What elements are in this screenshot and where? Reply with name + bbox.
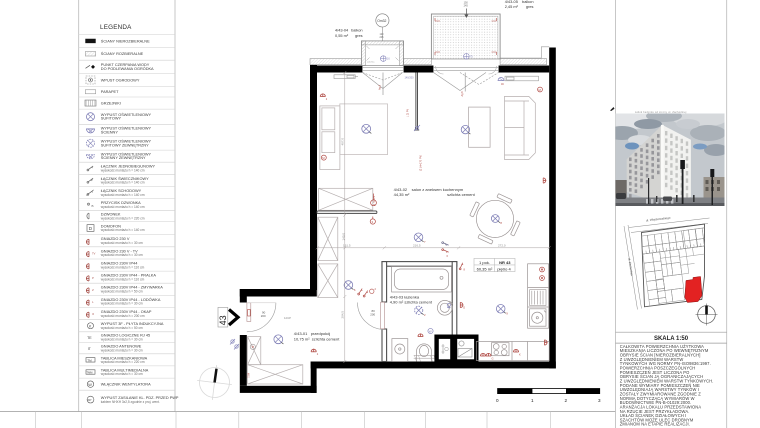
svg-text:4/43-01 przedpokój: 4/43-01 przedpokój	[294, 331, 331, 336]
svg-text:140/200: 140/200	[405, 77, 415, 80]
svg-text:wysokość montażu h = 50 cm: wysokość montażu h = 50 cm	[101, 326, 143, 330]
svg-text:wysokość montażu h = 200 cm: wysokość montażu h = 200 cm	[101, 314, 145, 318]
svg-text:0,55 m²: 0,55 m²	[335, 33, 349, 38]
svg-text:KP: KP	[88, 398, 92, 402]
svg-text:SUFITOWY ZEWNĘTRZNY: SUFITOWY ZEWNĘTRZNY	[101, 143, 149, 147]
svg-text:200: 200	[370, 312, 375, 316]
svg-text:SKALA 1:50: SKALA 1:50	[654, 336, 689, 342]
svg-text:W: W	[88, 383, 92, 387]
svg-text:wysokość montażu h = 140 cm: wysokość montażu h = 140 cm	[101, 168, 145, 172]
svg-text:TV: TV	[92, 252, 96, 256]
svg-text:LEGENDA: LEGENDA	[100, 24, 132, 31]
svg-text:wysokość montażu h = 30 cm: wysokość montażu h = 30 cm	[101, 372, 143, 376]
svg-text:szlichta cement: szlichta cement	[436, 192, 476, 197]
svg-text:wysokość montażu h = 110 cm: wysokość montażu h = 110 cm	[101, 277, 145, 281]
svg-text:245: 245	[380, 36, 385, 39]
svg-text:kablem NHXH 3x2,5 zgodnie z pr: kablem NHXH 3x2,5 zgodnie z proj. went.	[101, 400, 160, 404]
svg-text:wysokość montażu h = 140 cm: wysokość montażu h = 140 cm	[101, 205, 145, 209]
svg-text:wysokość montażu h = 30 cm: wysokość montażu h = 30 cm	[101, 337, 143, 341]
svg-text:O: O	[92, 312, 94, 316]
svg-text:wysokość montażu h = 110 cm: wysokość montażu h = 110 cm	[101, 265, 145, 269]
svg-text:TMM: TMM	[87, 370, 93, 374]
svg-text:gres: gres	[355, 33, 363, 38]
svg-text:wysokość montażu h = 30 cm: wysokość montażu h = 30 cm	[101, 241, 143, 245]
svg-text:gres: gres	[526, 4, 534, 9]
svg-text:10,75 m² szlichta cement: 10,75 m² szlichta cement	[294, 337, 340, 342]
svg-text:B: B	[92, 204, 94, 208]
svg-text:0: 0	[496, 398, 499, 403]
svg-text:wysokość montażu h = 220 cm: wysokość montażu h = 220 cm	[101, 216, 145, 220]
svg-text:wysokość montażu h = 140 cm: wysokość montażu h = 140 cm	[101, 181, 145, 185]
svg-text:PARAPET: PARAPET	[101, 90, 119, 94]
svg-text:140,0: 140,0	[341, 233, 345, 241]
svg-text:60,35 m²: 60,35 m²	[477, 266, 493, 271]
svg-text:191,5: 191,5	[343, 243, 351, 247]
svg-text:(2 (H=170 PV): (2 (H=170 PV)	[420, 155, 423, 171]
svg-text:D: D	[463, 305, 465, 309]
svg-text:ZMIANOM NA ETAPIE REALIZACJI.: ZMIANOM NA ETAPIE REALIZACJI.	[620, 422, 690, 427]
svg-text:216,5: 216,5	[413, 243, 421, 247]
svg-text:wysokość montażu h = 30 cm: wysokość montażu h = 30 cm	[101, 253, 143, 257]
svg-text:1 pok.: 1 pok.	[479, 260, 490, 265]
svg-text:ŚCIENNY ZEWNĘTRZNY: ŚCIENNY ZEWNĘTRZNY	[101, 155, 146, 160]
svg-text:44,35 m²: 44,35 m²	[394, 192, 410, 197]
svg-text:43: 43	[218, 315, 228, 325]
svg-text:ŚCIANY ROZBIERALNE: ŚCIANY ROZBIERALNE	[101, 51, 144, 56]
svg-text:245: 245	[464, 5, 469, 8]
svg-text:ŚCIENNY: ŚCIENNY	[101, 129, 119, 134]
svg-text:4,90 m² szlichta cement: 4,90 m² szlichta cement	[390, 299, 433, 304]
svg-text:2: 2	[565, 398, 568, 403]
svg-text:TM: TM	[87, 358, 92, 362]
svg-text:wysokość montażu h = 50 cm: wysokość montażu h = 50 cm	[101, 290, 143, 294]
svg-text:12UP: 12UP	[284, 316, 291, 320]
svg-text:Om32: Om32	[377, 19, 386, 23]
svg-text:272,0: 272,0	[498, 243, 506, 247]
svg-text:wysokość montażu h = 30 cm: wysokość montażu h = 30 cm	[101, 348, 143, 352]
svg-text:WPUST OGRODOWY: WPUST OGRODOWY	[101, 78, 140, 82]
svg-text:L 2| PV: L 2| PV	[407, 109, 410, 117]
svg-text:407,0: 407,0	[341, 138, 345, 146]
svg-text:3: 3	[598, 398, 601, 403]
svg-text:Ag 6: Ag 6	[461, 91, 464, 97]
svg-text:szlichta: szlichta	[367, 61, 375, 64]
svg-text:Ag 6: Ag 6	[379, 84, 382, 90]
svg-text:GRZEJNIKI: GRZEJNIKI	[101, 101, 121, 105]
svg-text:2,45 m²: 2,45 m²	[505, 4, 519, 9]
svg-text:200: 200	[261, 314, 266, 318]
svg-text:piętro 4: piętro 4	[497, 266, 511, 271]
svg-text:wysokość montażu h = 140 cm: wysokość montażu h = 140 cm	[101, 193, 145, 197]
svg-text:wysokość montażu h = 30 cm: wysokość montażu h = 30 cm	[101, 302, 143, 306]
svg-text:G: G	[492, 356, 494, 360]
svg-text:ŚCIANY NIEROZBIERALNE: ŚCIANY NIEROZBIERALNE	[101, 38, 150, 43]
svg-text:SUFITOWY: SUFITOWY	[101, 117, 122, 121]
svg-text:W: W	[429, 329, 432, 333]
svg-text:wysokość montażu h = 140 cm: wysokość montażu h = 140 cm	[101, 228, 145, 232]
svg-text:294,5: 294,5	[341, 311, 345, 319]
svg-text:1: 1	[531, 398, 534, 403]
svg-text:TE: TE	[87, 336, 92, 340]
svg-text:DO PODLEWANIA OGRÓDKA: DO PODLEWANIA OGRÓDKA	[101, 66, 154, 71]
svg-text:75M: 75M	[247, 373, 251, 378]
svg-text:wysokość montażu h = 220 cm: wysokość montażu h = 220 cm	[101, 360, 145, 364]
svg-text:WŁĄCZNIK WENTYLATORA: WŁĄCZNIK WENTYLATORA	[101, 383, 151, 387]
svg-text:NR 43: NR 43	[499, 260, 511, 265]
svg-text:K: K	[519, 352, 521, 356]
svg-text:P: P	[92, 276, 94, 280]
